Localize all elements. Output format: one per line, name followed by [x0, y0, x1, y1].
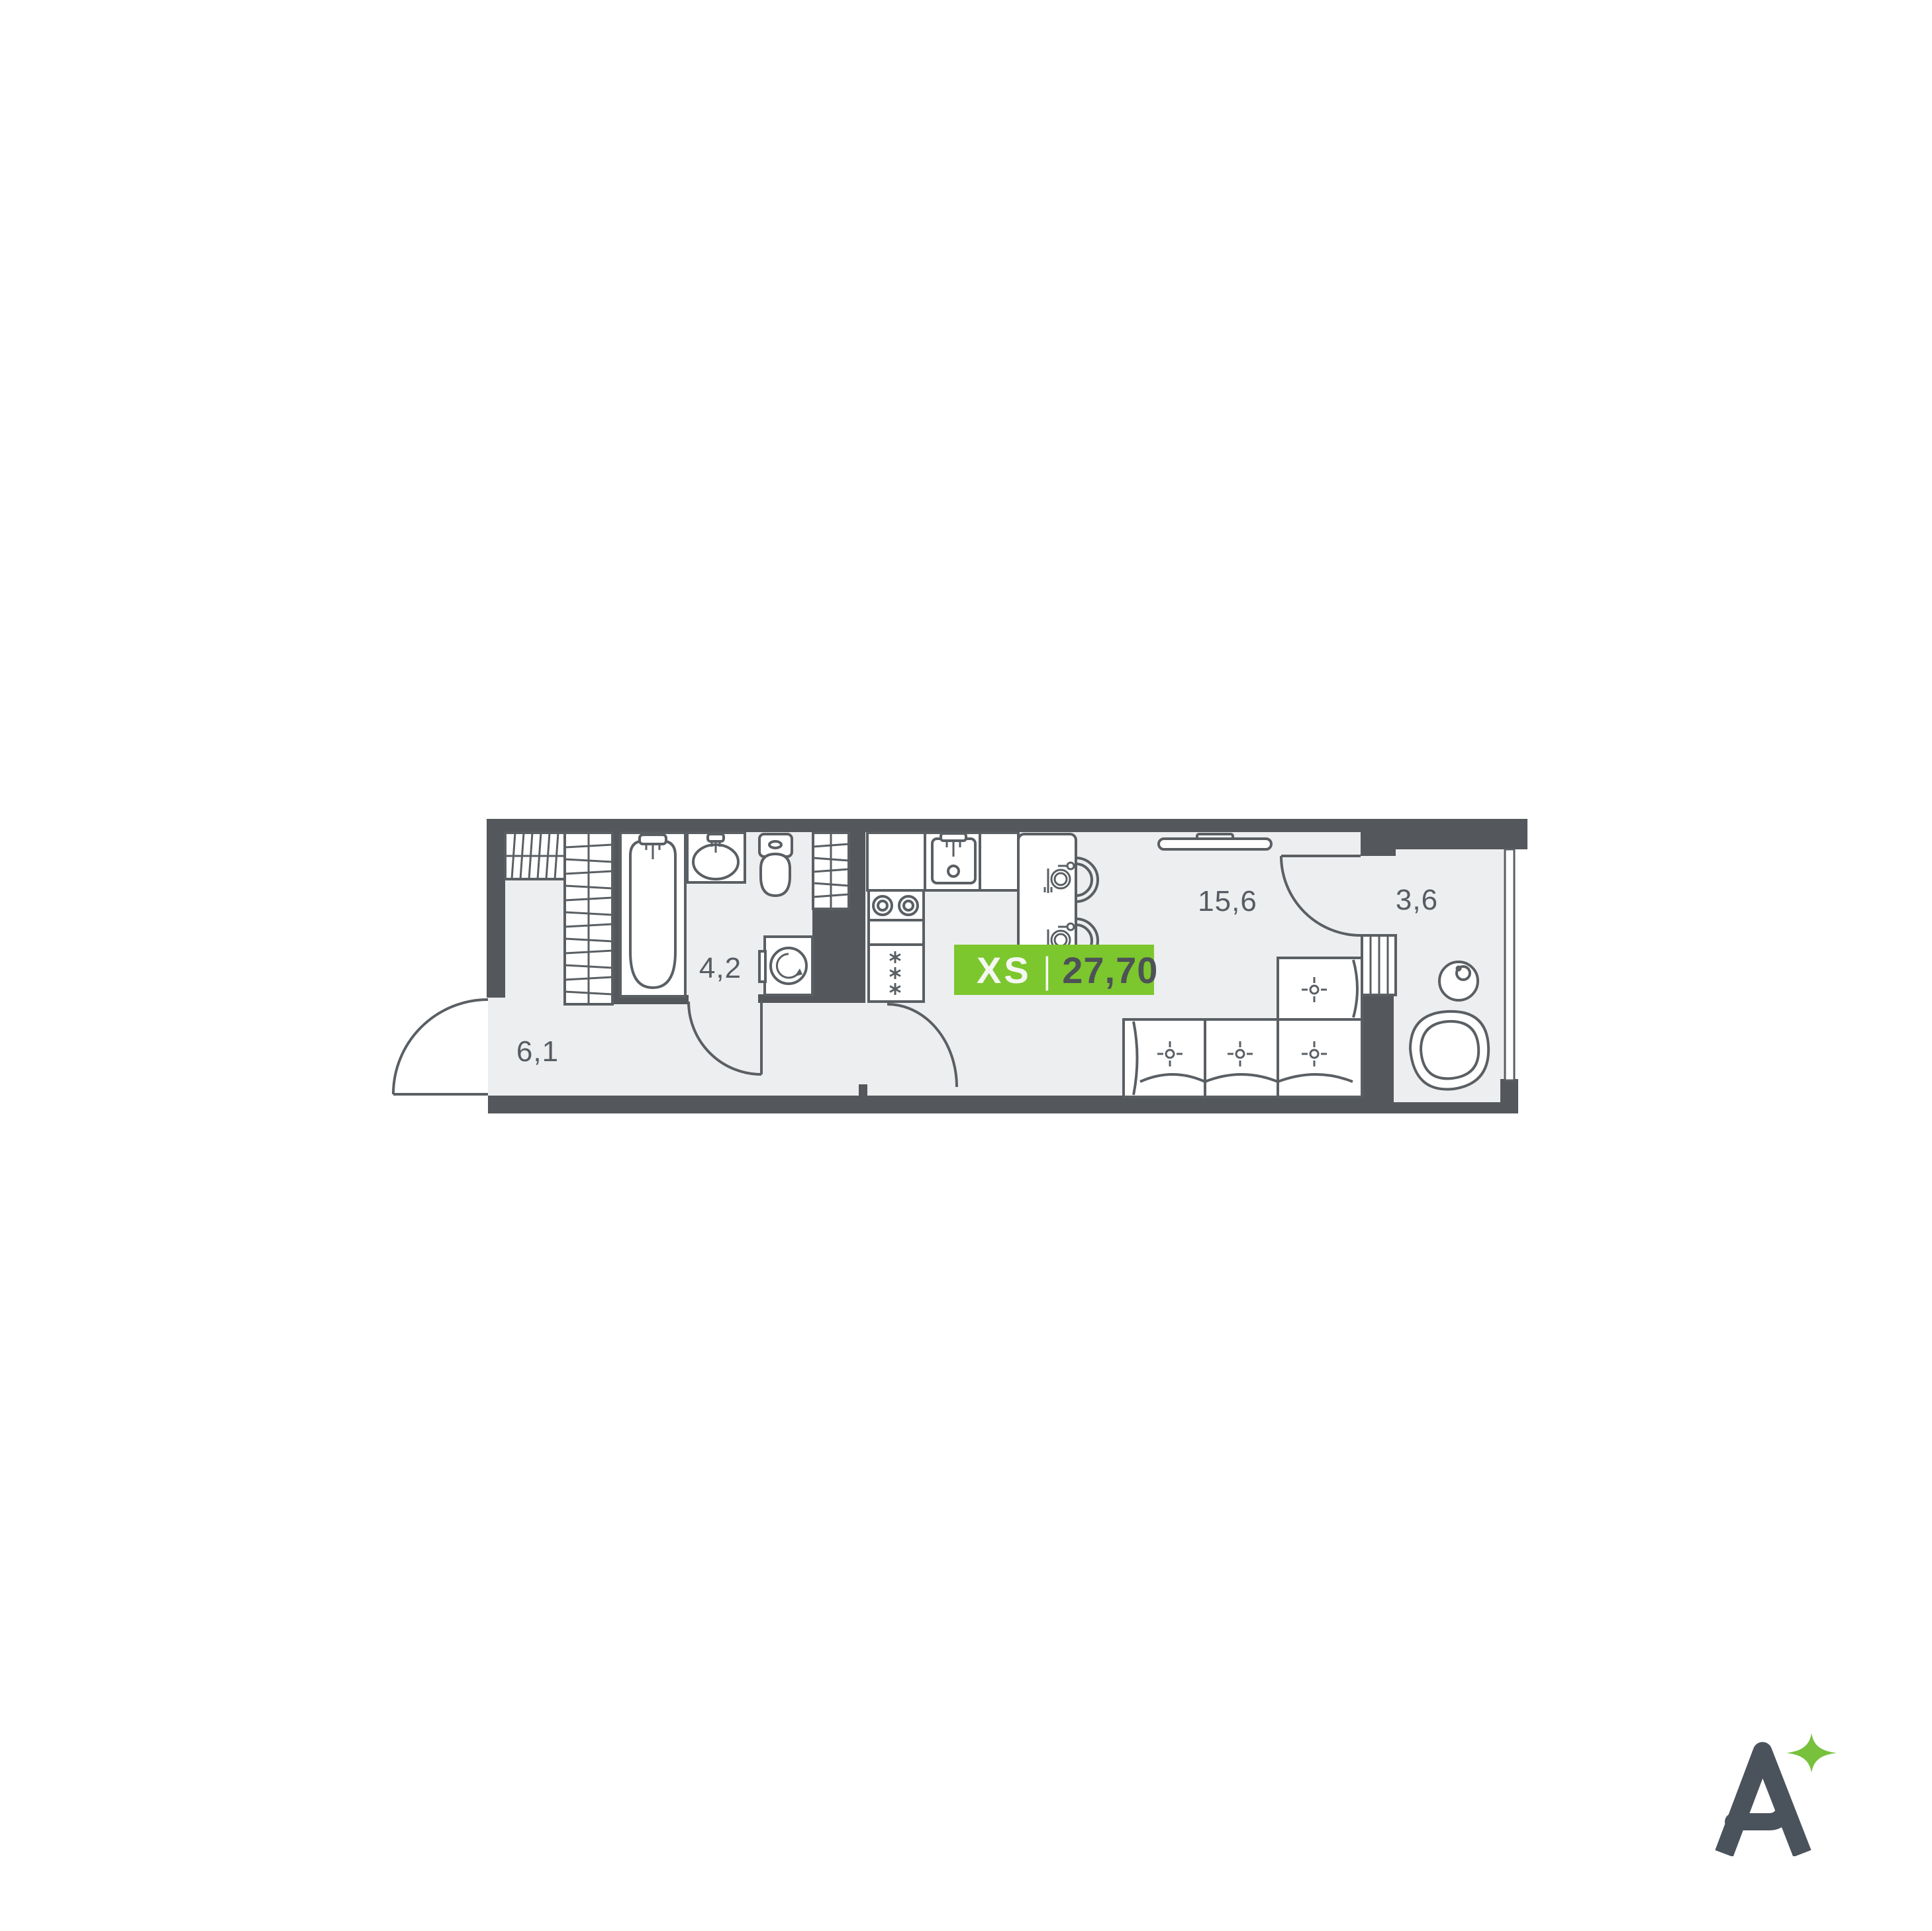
apartment-total-area: 27,70 — [1062, 949, 1158, 992]
apartment-area-badge: XS | 27,70 — [954, 945, 1154, 995]
bathroom-shelf — [813, 833, 849, 909]
apartment-size-label: XS — [977, 949, 1032, 992]
page: 6,1 4,2 15,6 3,6 XS | 27,70 — [0, 0, 1932, 1931]
entrance-door — [393, 1000, 488, 1094]
badge-separator: | — [1043, 949, 1051, 992]
balcony-table — [1439, 962, 1478, 1000]
kitchen-sink — [932, 833, 975, 883]
logo-sparkle-icon — [1786, 1733, 1837, 1773]
room-area-hallway: 6,1 — [516, 1035, 559, 1068]
logo-letter-a-icon — [1712, 1732, 1839, 1856]
washing-machine — [759, 937, 812, 995]
balcony-window — [1362, 935, 1396, 995]
developer-logo — [1712, 1732, 1839, 1856]
toilet — [759, 834, 792, 896]
stove — [869, 890, 924, 920]
balcony-glazing — [1505, 849, 1514, 1080]
room-area-living-kitchen: 15,6 — [1198, 885, 1257, 918]
room-area-bathroom: 4,2 — [699, 952, 742, 985]
fridge — [869, 945, 924, 1002]
bathtub — [620, 833, 685, 996]
room-area-balcony: 3,6 — [1396, 884, 1438, 917]
bathroom-sink — [687, 833, 745, 882]
balcony-armchair — [1410, 1012, 1488, 1090]
